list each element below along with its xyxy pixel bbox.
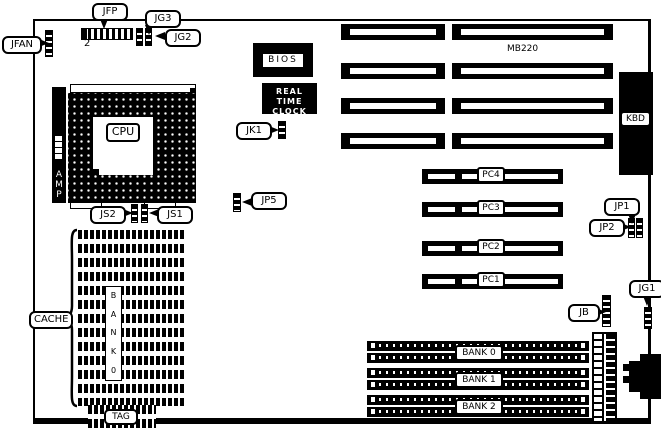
bank0-letter: N (111, 329, 117, 337)
amp-bar: A M P (52, 87, 66, 203)
isa-slot-segment (341, 133, 445, 149)
bank0-letter: 0 (111, 367, 116, 375)
bios-chip: BIOS (253, 43, 313, 77)
pci-slot: PC3 (422, 202, 563, 217)
socket-notch (190, 88, 195, 93)
js2-callout: JS2 (90, 206, 126, 224)
jp1-jp2-jumper-block (636, 218, 643, 238)
pci-slot: PC2 (422, 241, 563, 256)
kbd-chip: KBD (619, 72, 653, 175)
jfp-callout: JFP (92, 3, 128, 21)
amp-letter: A (56, 170, 62, 180)
motherboard-diagram: JFAN JFP 2 JG3 JG2 A M P CPU JS2 JS1 BIO… (0, 0, 661, 434)
bank-label: BANK 2 (455, 399, 503, 415)
board-model-label: MB220 (507, 44, 538, 54)
rtc-label-line1: REAL TIME (262, 87, 317, 107)
jg3-callout: JG3 (145, 10, 181, 28)
bank0-strip: B A N K 0 (105, 286, 122, 381)
jb-callout: JB (568, 304, 600, 322)
bios-label: BIOS (263, 54, 303, 67)
rtc-chip: REAL TIME CLOCK (262, 83, 317, 114)
pci-slot-label: PC3 (477, 200, 505, 216)
socket-top-bar (70, 84, 196, 93)
bank-label: BANK 0 (455, 345, 503, 361)
bank0-letter: B (111, 292, 117, 300)
jp1-callout: JP1 (604, 198, 640, 216)
cpu-socket: CPU (68, 93, 196, 203)
jg2-pointer (155, 32, 165, 40)
din-keyboard-connector (623, 364, 630, 371)
isa-slot-segment (452, 63, 613, 79)
jfp-pin2-label: 2 (84, 38, 90, 49)
kbd-label: KBD (621, 112, 650, 126)
jp5-callout: JP5 (251, 192, 287, 210)
amp-letter: M (55, 180, 63, 190)
isa-slot-segment (341, 98, 445, 114)
rtc-label-line2: CLOCK (262, 107, 317, 117)
jg1-jumper (644, 307, 652, 329)
isa-slot-segment (452, 133, 613, 149)
din-keyboard-connector (623, 376, 630, 383)
cache-chip-array (78, 230, 184, 406)
amp-letter: P (56, 190, 61, 200)
bank0-letter: K (111, 348, 116, 356)
jp5-jumper (233, 193, 241, 212)
jk1-callout: JK1 (236, 122, 272, 140)
pci-slot-label: PC2 (477, 239, 505, 255)
pci-slot: PC4 (422, 169, 563, 184)
bank0-letter: A (111, 311, 116, 319)
tag-label: TAG (104, 409, 138, 425)
cache-callout: CACHE (29, 311, 73, 329)
jp2-callout: JP2 (589, 219, 625, 237)
isa-slot-segment (341, 63, 445, 79)
jg3-jumper (136, 28, 143, 46)
cpu-socket-key (93, 169, 99, 175)
amp-component (54, 135, 63, 161)
power-connector (592, 332, 617, 423)
bank-label: BANK 1 (455, 372, 503, 388)
cpu-label: CPU (106, 123, 140, 142)
jk1-jumper (278, 121, 286, 139)
jg1-callout: JG1 (629, 280, 661, 298)
jfan-callout: JFAN (2, 36, 42, 54)
amp-brand-text: A M P (52, 170, 66, 200)
pci-slot-label: PC1 (477, 272, 505, 288)
isa-slot-segment (452, 24, 613, 40)
din-keyboard-connector (640, 354, 661, 399)
isa-slot-segment (452, 98, 613, 114)
js1-jumper (141, 204, 148, 223)
isa-slot-segment (341, 24, 445, 40)
js1-callout: JS1 (157, 206, 193, 224)
din-keyboard-connector (629, 361, 642, 392)
jg2-callout: JG2 (165, 29, 201, 47)
pci-slot: PC1 (422, 274, 563, 289)
rtc-label: REAL TIME CLOCK (262, 87, 317, 117)
pci-slot-label: PC4 (477, 167, 505, 183)
